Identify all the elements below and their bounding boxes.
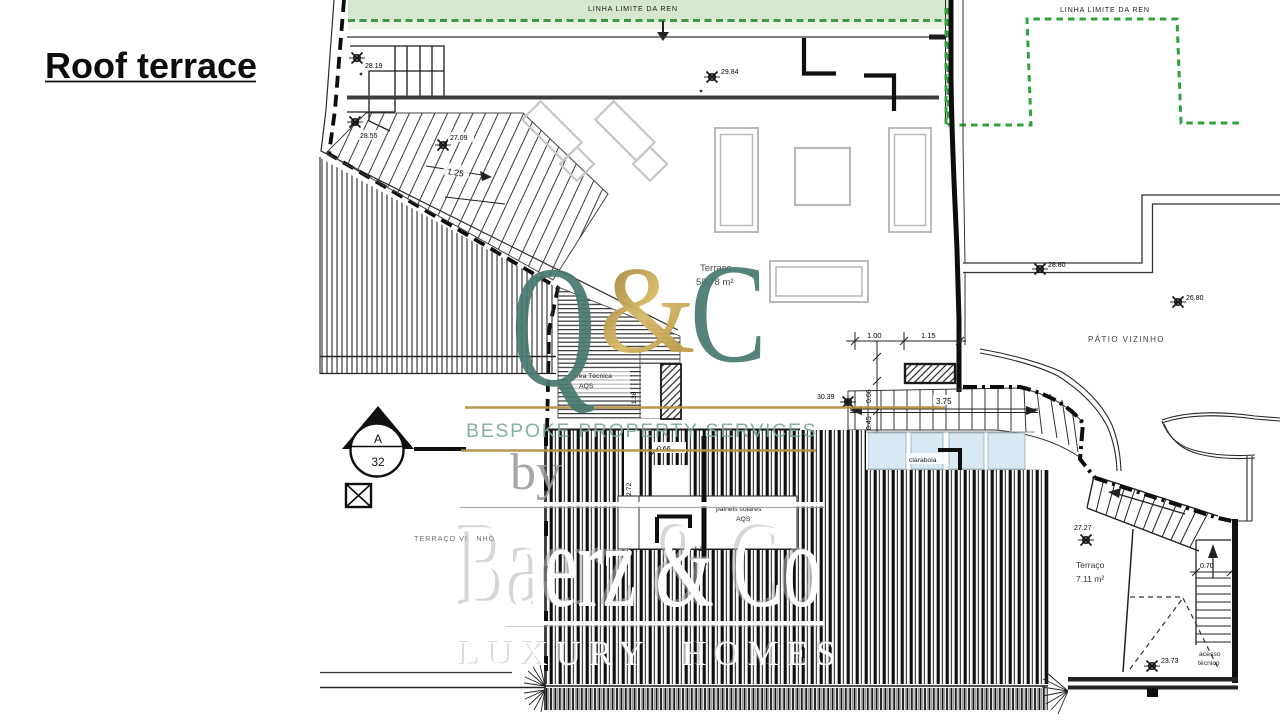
svg-text:A: A bbox=[374, 432, 382, 446]
svg-text:23.73: 23.73 bbox=[1161, 658, 1179, 665]
svg-text:0.70: 0.70 bbox=[1200, 563, 1214, 570]
svg-text:técnico: técnico bbox=[1198, 660, 1220, 667]
svg-text:27.09: 27.09 bbox=[450, 135, 468, 142]
svg-text:BESPOKE PROPERTY SERVICES: BESPOKE PROPERTY SERVICES bbox=[466, 420, 817, 442]
svg-text:0.45: 0.45 bbox=[866, 416, 873, 430]
svg-text:LUXURY HOMES: LUXURY HOMES bbox=[460, 634, 844, 673]
svg-text:LINHA LIMITE DA REN: LINHA LIMITE DA REN bbox=[588, 4, 678, 13]
svg-text:PÁTIO VIZINHO: PÁTIO VIZINHO bbox=[1088, 335, 1165, 344]
svg-text:1.15: 1.15 bbox=[921, 331, 936, 340]
svg-text:28.80: 28.80 bbox=[1048, 262, 1066, 269]
svg-text:28.55: 28.55 bbox=[360, 133, 378, 140]
svg-text:30.39: 30.39 bbox=[817, 394, 835, 401]
svg-text:Baerz & Co: Baerz & Co bbox=[460, 500, 821, 633]
svg-text:LINHA LIMITE DA REN: LINHA LIMITE DA REN bbox=[1060, 5, 1150, 14]
svg-text:7.11 m²: 7.11 m² bbox=[1076, 574, 1104, 584]
svg-text:Roof terrace: Roof terrace bbox=[45, 45, 257, 86]
svg-text:3.75: 3.75 bbox=[936, 397, 952, 406]
svg-text:2.72: 2.72 bbox=[626, 483, 633, 496]
svg-text:32: 32 bbox=[371, 455, 385, 469]
svg-text:by: by bbox=[510, 444, 562, 501]
svg-text:26.80: 26.80 bbox=[1186, 295, 1204, 302]
svg-text:0.66: 0.66 bbox=[866, 389, 873, 403]
svg-text:28.19: 28.19 bbox=[365, 63, 383, 70]
svg-text:C: C bbox=[690, 235, 767, 392]
svg-text:1.00: 1.00 bbox=[867, 331, 882, 340]
svg-text:Terraço: Terraço bbox=[1076, 560, 1105, 570]
svg-text:acesso: acesso bbox=[1199, 651, 1221, 658]
svg-text:claraboia: claraboia bbox=[909, 457, 937, 464]
svg-text:Q: Q bbox=[511, 231, 596, 423]
svg-text:1.38: 1.38 bbox=[631, 391, 638, 404]
svg-text:&: & bbox=[599, 242, 695, 379]
svg-text:27.27: 27.27 bbox=[1074, 525, 1092, 532]
svg-text:29.84: 29.84 bbox=[721, 69, 739, 76]
